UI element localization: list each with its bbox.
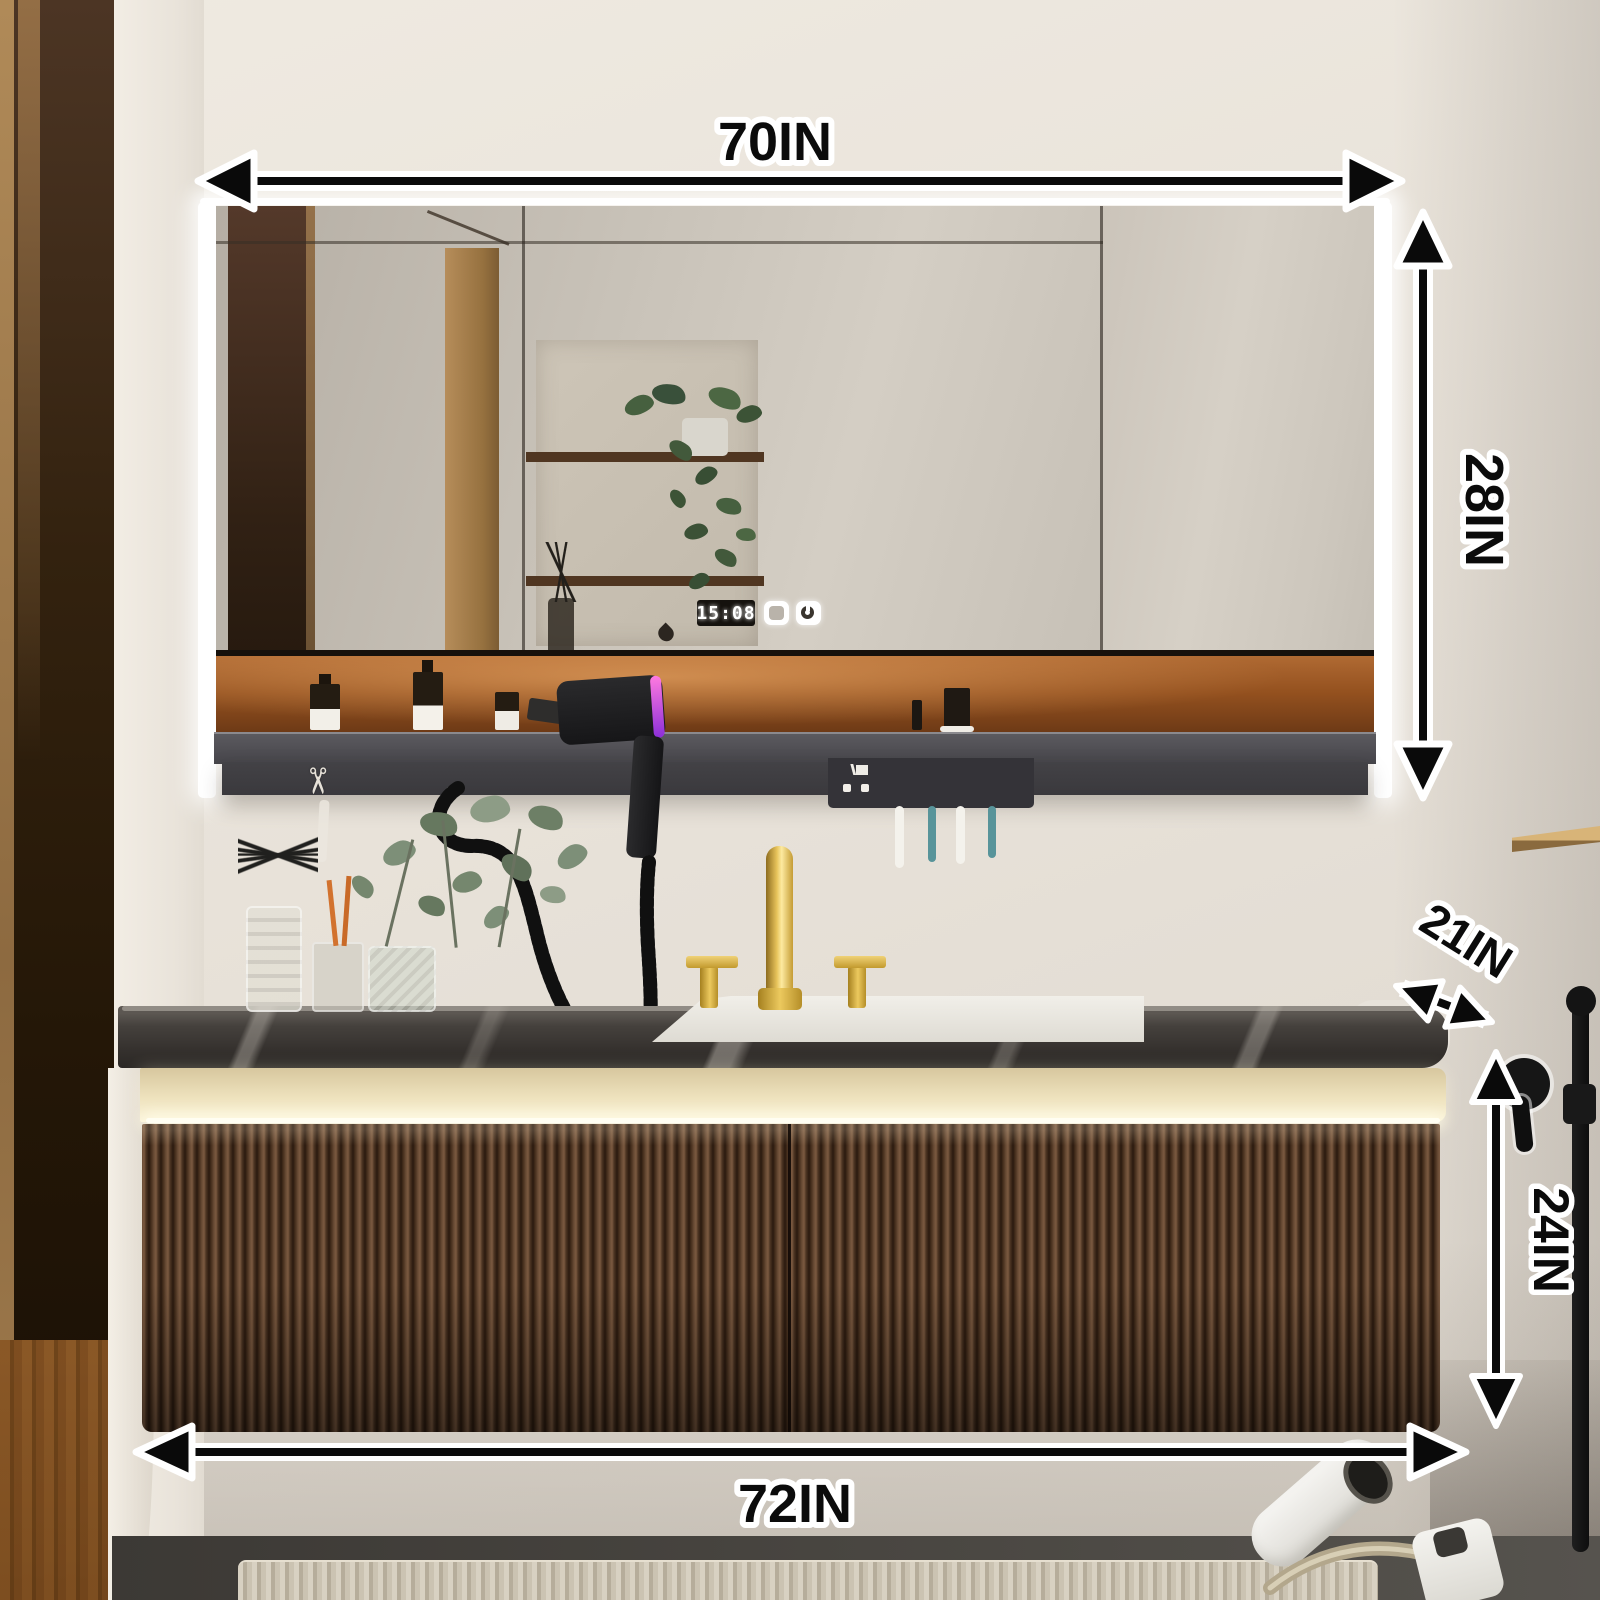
arrowhead-up (1472, 1052, 1520, 1102)
glass-vase (368, 946, 436, 1012)
reflection-door-edge (306, 206, 315, 652)
mirror-right-door (1103, 206, 1374, 652)
power-icon[interactable] (796, 601, 821, 625)
label-vanity-width: 72IN (738, 1474, 852, 1534)
fluted-cabinet (142, 1124, 1440, 1432)
mirror-clock-chip: 15:08 (697, 600, 755, 626)
toothbrush-white-2 (956, 806, 965, 864)
pencil-2 (342, 876, 352, 946)
arrowhead-right (1410, 1426, 1466, 1478)
mirror-led-left (198, 202, 216, 798)
arrowhead-down (1397, 744, 1449, 798)
reflection-diffuser-reeds (538, 542, 586, 602)
ledge-fascia (222, 762, 1368, 795)
shelf-bottle-1 (310, 684, 340, 730)
rug (238, 1560, 1378, 1600)
mirror-clock-time: 15:08 (696, 603, 755, 624)
shelf-bottle-3 (495, 692, 519, 730)
arrowhead-upleft (1389, 966, 1443, 1020)
reflection-diffuser-bottle (548, 598, 574, 652)
faucet-spout-base (758, 988, 802, 1010)
annotation-mirror-width: 70IN (170, 108, 1430, 220)
mirror-cabinet: 15:08 (198, 198, 1392, 812)
faucet-handle-right[interactable] (848, 966, 866, 1008)
door-stile-light (18, 0, 40, 760)
pencil-1 (327, 880, 339, 946)
gray-ledge (214, 732, 1376, 764)
shelf-bottle-2 (413, 672, 443, 730)
reflection-shelf-upper (526, 452, 764, 462)
door-panel-light-bottom (0, 1340, 114, 1600)
reflection-door (228, 206, 306, 652)
module-button-1[interactable] (843, 784, 851, 792)
annotation-mirror-height: 28IN (1386, 196, 1556, 836)
shelf-bottle-1-cap (319, 674, 331, 684)
faucet-handle-left-bar[interactable] (686, 956, 738, 968)
arrowhead-downright (1445, 988, 1499, 1042)
sink-basin (652, 996, 1144, 1042)
cabinet-door-seam (788, 1124, 791, 1432)
hair-dryer-body (556, 674, 666, 745)
label-cabinet-height: 24IN (1523, 1187, 1579, 1293)
mirror-seam-left (522, 206, 525, 652)
pencil-cup (312, 942, 364, 1012)
reed-diffuser-sticks (238, 796, 318, 912)
scissors-icon: ✂ (296, 766, 338, 796)
reed-diffuser-jar (246, 906, 302, 1012)
label-counter-depth: 21IN (1411, 896, 1521, 988)
annotation-cabinet-height: 24IN (1460, 1040, 1600, 1440)
module-display-icons (842, 764, 868, 775)
defog-icon[interactable] (764, 601, 789, 625)
toothbrush-teal-1 (928, 806, 936, 862)
shelf-bottle-5 (944, 688, 970, 730)
module-button-2[interactable] (861, 784, 869, 792)
arrowhead-up (1397, 212, 1449, 266)
faucet-spout (766, 846, 793, 998)
faucet-handle-left[interactable] (700, 966, 718, 1008)
gold-band-underglow (146, 1118, 1440, 1123)
shelf-bottle-4 (912, 700, 922, 730)
toothbrush-white-1 (895, 806, 904, 868)
toothbrush-module (828, 758, 1034, 808)
toothbrush-teal-2 (988, 806, 996, 858)
gold-light-band (140, 1068, 1446, 1122)
reflection-wood-cabinet (445, 248, 499, 652)
scissors-strap (316, 800, 329, 862)
arrowhead-left (198, 153, 254, 209)
arrowhead-left (136, 1426, 192, 1478)
label-mirror-height: 28IN (1454, 453, 1514, 567)
shelf-bottle-2-cap (422, 660, 433, 672)
bathroom-vanity-product-photo: 15:08 (0, 0, 1600, 1600)
amber-shelf (216, 656, 1374, 732)
faucet-handle-right-bar[interactable] (834, 956, 886, 968)
mirror-glass: 15:08 (216, 206, 1374, 652)
annotation-vanity-width: 72IN (110, 1400, 1510, 1550)
label-mirror-width: 70IN (718, 112, 832, 172)
